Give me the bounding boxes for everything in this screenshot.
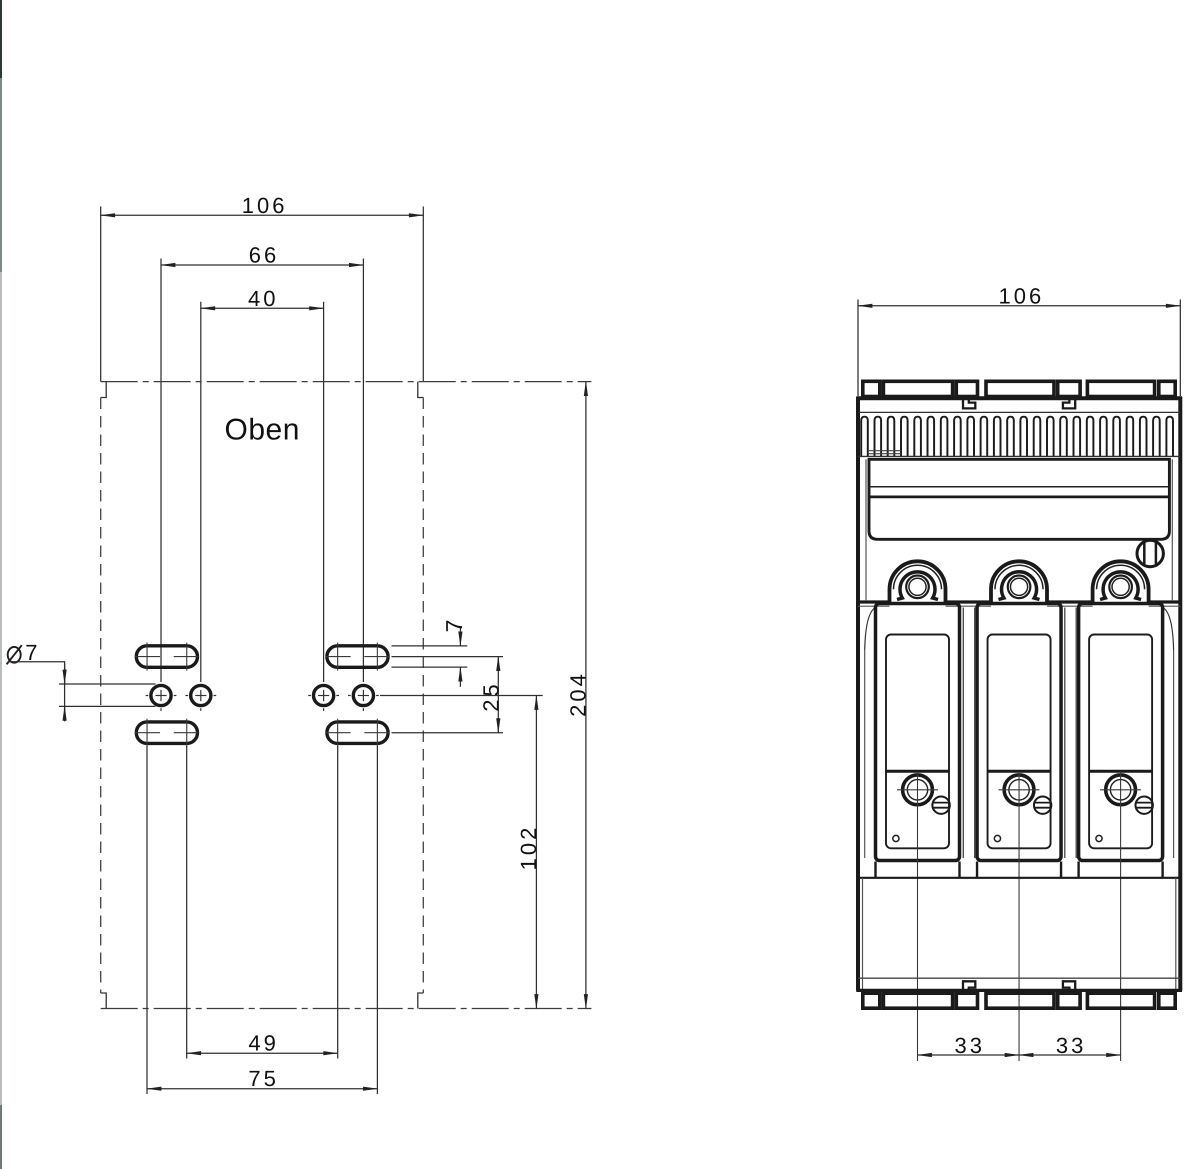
svg-text:49: 49 [248,1031,278,1056]
svg-text:102: 102 [516,825,541,871]
svg-text:33: 33 [1056,1033,1086,1058]
svg-text:7: 7 [25,640,37,665]
svg-text:7: 7 [441,617,467,633]
svg-text:75: 75 [248,1066,278,1091]
svg-text:106: 106 [242,193,288,218]
svg-text:Oben: Oben [225,414,300,447]
svg-text:106: 106 [999,283,1045,308]
svg-text:40: 40 [248,286,278,311]
svg-text:25: 25 [478,681,503,711]
svg-text:66: 66 [249,243,279,268]
svg-text:204: 204 [565,671,590,717]
svg-text:33: 33 [954,1033,984,1058]
